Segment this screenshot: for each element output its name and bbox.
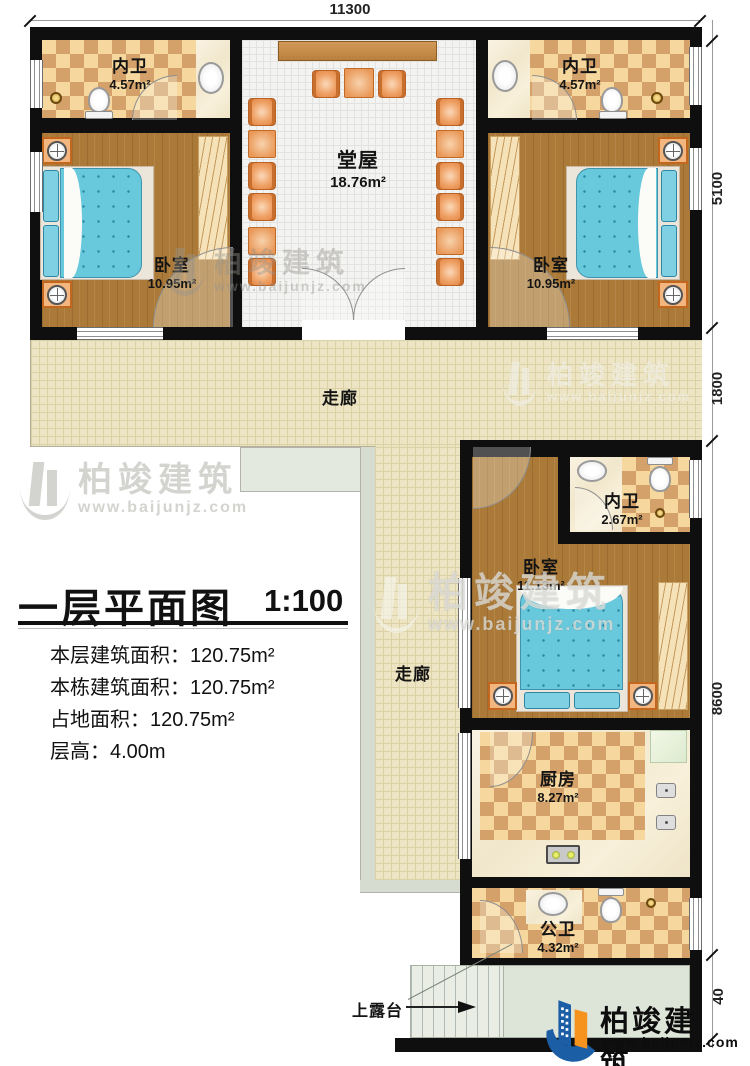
nightstand-icon: [488, 682, 517, 710]
room-area: 2.67m²: [582, 512, 662, 527]
stat-value: 4.00m: [110, 741, 166, 763]
side-table-icon: [436, 130, 464, 158]
window: [689, 898, 702, 950]
chair-icon: [248, 193, 276, 221]
watermark-logo-icon: [24, 462, 68, 518]
kitchen-sink-icon: [656, 783, 676, 798]
chair-icon: [436, 258, 464, 286]
stove-icon: [546, 845, 580, 864]
room-area: 4.57m²: [540, 77, 620, 92]
brand-name: 柏竣建筑: [600, 998, 720, 1066]
chair-icon: [312, 70, 340, 98]
lower-building-block: 内卫 2.67m² 卧室 11.13m² 厨房 8.27m²: [460, 440, 702, 970]
room-area: 10.95m²: [132, 276, 212, 291]
right-dimension-label: 1800: [698, 348, 738, 428]
sink-icon: [577, 460, 607, 482]
stat-value: 120.75m²: [190, 677, 275, 699]
room-name: 公卫: [518, 920, 598, 940]
room-area: 10.95m²: [511, 276, 591, 291]
chair-icon: [378, 70, 406, 98]
window: [547, 327, 638, 340]
floor-lamp-icon: [651, 92, 663, 104]
top-dimension-line: [30, 20, 700, 21]
stairs-icon: [410, 965, 504, 1038]
side-table-icon: [344, 68, 374, 98]
wardrobe-icon: [490, 136, 520, 260]
nightstand-icon: [42, 281, 72, 308]
stat-label: 占地面积：: [50, 709, 150, 731]
table-lamp-icon: [663, 285, 683, 305]
nightstand-icon: [42, 137, 72, 164]
nightstand-icon: [628, 682, 657, 710]
room-label-bath-public: 公卫 4.32m²: [518, 920, 598, 955]
upper-building-block: 内卫 4.57m² 卧室 10.95m²: [30, 27, 702, 340]
floor-lamp-icon: [646, 898, 656, 908]
pillow-icon: [574, 692, 620, 709]
room-label-bed-lower: 卧室 11.13m²: [501, 558, 581, 593]
altar-table-icon: [278, 41, 437, 61]
toilet-icon: [600, 897, 622, 923]
plan-title: 一层平面图: [18, 576, 233, 634]
brand-website: www.baijunjz.com: [602, 1034, 739, 1050]
window: [458, 733, 471, 859]
floor-plan-canvas: 11300 5100 1800 8600 40 内卫 4.57m² 卧室: [0, 0, 750, 1066]
room-name: 卧室: [511, 256, 591, 276]
room-name: 卧室: [501, 558, 581, 578]
room-area: 4.32m²: [518, 940, 598, 955]
room-name: 卧室: [132, 256, 212, 276]
brand-logo: 柏竣建筑 www.baijunjz.com: [540, 988, 720, 1058]
wall-segment: [558, 440, 570, 544]
toilet-icon: [649, 466, 671, 492]
dimension-tick: [694, 15, 707, 28]
window: [689, 47, 702, 105]
stat-label: 层高：: [50, 741, 110, 763]
window: [77, 327, 163, 340]
bed-sheet-icon: [638, 168, 656, 278]
window: [458, 578, 471, 708]
room-label-hall: 堂屋 18.76m²: [318, 150, 398, 191]
burner-icon: [552, 851, 560, 859]
watermark: 柏竣建筑 www.baijunjz.com: [24, 462, 248, 518]
sink-icon: [198, 62, 224, 94]
nightstand-icon: [658, 137, 688, 164]
pillow-icon: [524, 692, 570, 709]
corridor-side-label: 走廊: [395, 660, 431, 685]
side-table-icon: [436, 227, 464, 255]
nightstand-icon: [658, 281, 688, 308]
stairs-label: 上露台: [352, 997, 403, 1021]
room-name: 堂屋: [318, 150, 398, 174]
pillow-icon: [43, 170, 59, 222]
room-name: 厨房: [518, 770, 598, 790]
sink-icon: [492, 60, 518, 92]
dimension-tick: [24, 15, 37, 28]
room-name: 内卫: [582, 492, 662, 512]
right-dimension-label: 5100: [698, 148, 738, 228]
stat-value: 120.75m²: [150, 709, 235, 731]
watermark-site: www.baijunjz.com: [78, 499, 248, 517]
room-label-bed-right: 卧室 10.95m²: [511, 256, 591, 291]
table-lamp-icon: [47, 141, 67, 161]
toilet-tank-icon: [599, 111, 627, 119]
pillow-icon: [661, 225, 677, 277]
title-underline: [18, 621, 348, 625]
stairs-arrow-head: [458, 1001, 476, 1013]
stat-row: 本栋建筑面积：120.75m²: [50, 672, 275, 704]
room-label-bath-left: 内卫 4.57m²: [90, 57, 170, 92]
window: [30, 152, 43, 212]
burner-icon: [567, 851, 575, 859]
stat-value: 120.75m²: [190, 645, 275, 667]
table-lamp-icon: [633, 686, 653, 706]
side-table-icon: [248, 227, 276, 255]
fridge-icon: [650, 730, 687, 763]
chair-icon: [248, 258, 276, 286]
stat-row: 占地面积：120.75m²: [50, 704, 275, 736]
entrance-opening: [302, 320, 405, 340]
stat-label: 本层建筑面积：: [50, 645, 190, 667]
window: [30, 60, 43, 108]
plan-scale: 1:100: [264, 583, 343, 619]
room-label-bed-left: 卧室 10.95m²: [132, 256, 212, 291]
chair-icon: [248, 162, 276, 190]
dimension-value: 5100: [710, 171, 727, 204]
window: [689, 148, 702, 210]
room-label-bath-right: 内卫 4.57m²: [540, 57, 620, 92]
corridor-front: [30, 340, 702, 447]
pillow-icon: [661, 170, 677, 222]
room-area: 18.76m²: [318, 174, 398, 192]
table-lamp-icon: [663, 141, 683, 161]
wardrobe-icon: [198, 136, 228, 260]
plan-stats: 本层建筑面积：120.75m² 本栋建筑面积：120.75m² 占地面积：120…: [50, 640, 275, 768]
dimension-value: 8600: [710, 681, 727, 714]
toilet-tank-icon: [85, 111, 113, 119]
stat-label: 本栋建筑面积：: [50, 677, 190, 699]
room-area: 4.57m²: [90, 77, 170, 92]
window: [689, 460, 702, 518]
top-dimension-label: 11300: [280, 1, 420, 18]
room-label-kitchen: 厨房 8.27m²: [518, 770, 598, 805]
chair-icon: [436, 98, 464, 126]
chair-icon: [248, 98, 276, 126]
stat-row: 层高：4.00m: [50, 736, 275, 768]
corridor-side-edge: [360, 447, 375, 893]
table-lamp-icon: [47, 285, 67, 305]
wall-segment: [558, 532, 690, 544]
corridor-side-cap: [360, 880, 465, 893]
chair-icon: [436, 162, 464, 190]
right-dimension-label: 8600: [698, 658, 738, 738]
room-name: 内卫: [90, 57, 170, 77]
room-area: 8.27m²: [518, 790, 598, 805]
watermark-name: 柏竣建筑: [78, 463, 248, 499]
floor-lamp-icon: [50, 92, 62, 104]
room-name: 内卫: [540, 57, 620, 77]
side-table-icon: [248, 130, 276, 158]
toilet-tank-icon: [598, 888, 624, 896]
table-lamp-icon: [493, 686, 513, 706]
wardrobe-icon: [658, 582, 688, 710]
stat-row: 本层建筑面积：120.75m²: [50, 640, 275, 672]
pillow-icon: [43, 225, 59, 277]
sink-icon: [538, 892, 568, 916]
room-label-bath-inner: 内卫 2.67m²: [582, 492, 662, 527]
chair-icon: [436, 193, 464, 221]
toilet-tank-icon: [647, 457, 673, 465]
dimension-value: 1800: [710, 371, 727, 404]
stairs-arrow-line: [406, 1006, 458, 1008]
brand-logo-icon: [544, 996, 598, 1062]
corridor-front-label: 走廊: [322, 384, 358, 409]
kitchen-sink-icon: [656, 815, 676, 830]
title-underline-shadow: [18, 628, 348, 629]
room-area: 11.13m²: [501, 578, 581, 593]
